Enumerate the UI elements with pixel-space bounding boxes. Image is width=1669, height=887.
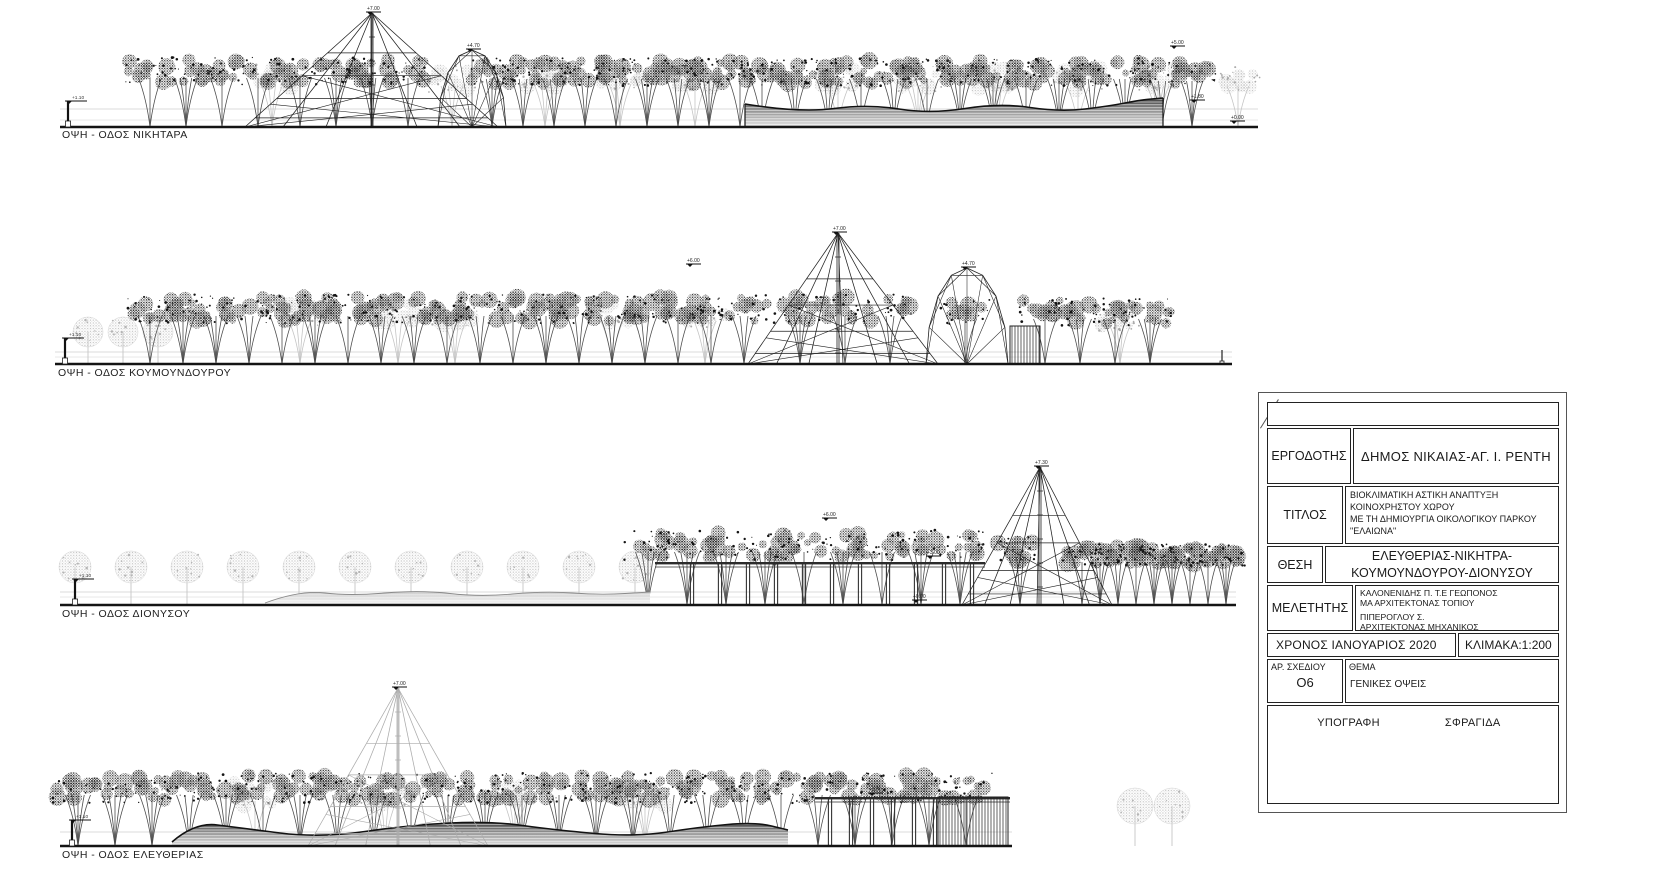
location-row: ΘΕΣΗ ΕΛΕΥΘΕΡΙΑΣ-ΝΙΚΗΤΡΑ- ΚΟΥΜΟΥΝΔΟΥΡΟΥ-Δ… — [1267, 546, 1559, 583]
designer-line: ΠΙΠΕΡΟΓΛΟΥ Σ. — [1360, 612, 1554, 622]
dome-structure: +4.70 — [926, 261, 1008, 364]
pyramid-structure: +7.30 — [962, 460, 1112, 605]
location-line: ΚΟΥΜΟΥΝΔΟΥΡΟΥ-ΔΙΟΝΥΣΟΥ — [1351, 565, 1533, 581]
drawing-number-cell: ΑΡ. ΣΧΕΔΙΟΥ Ο6 — [1267, 659, 1343, 703]
svg-text:+1.80: +1.80 — [1191, 94, 1204, 100]
pyramid-structure: +7.00 — [308, 681, 488, 846]
svg-text:+7.00: +7.00 — [833, 226, 846, 232]
stamp-label: ΣΦΡΑΓΙΔΑ — [1445, 717, 1501, 729]
svg-text:+1.10: +1.10 — [69, 332, 81, 338]
designer-line: ΑΡΧΙΤΕΚΤΟΝΑΣ ΜΗΧΑΝΙΚΟΣ — [1360, 622, 1554, 632]
designer-line: ΚΑΛΟΝΕΝΙΔΗΣ Π. Τ.Ε ΓΕΩΠΟΝΟΣ — [1360, 588, 1554, 598]
project-title-line: "ΕΛΑΙΩΝΑ" — [1350, 526, 1554, 538]
drawing-sheet: { "sheet": { "background": "#ffffff", "l… — [0, 0, 1669, 887]
svg-text:+4.70: +4.70 — [467, 43, 480, 49]
designer-line: ΜΑ ΑΡΧΙΤΕΚΤΟΝΑΣ ΤΟΠΙΟΥ — [1360, 598, 1554, 608]
project-title-line: ΚΟΙΝΟΧΡΗΣΤΟΥ ΧΩΡΟΥ — [1350, 502, 1554, 514]
date-scale-row: ΧΡΟΝΟΣ ΙΑΝΟΥΑΡΙΟΣ 2020 ΚΛΙΜΑΚΑ:1:200 — [1267, 633, 1559, 657]
svg-text:+3.00: +3.00 — [869, 787, 882, 793]
slats-structure — [1010, 326, 1040, 364]
tree-row — [59, 526, 1246, 605]
svg-text:+6.00: +6.00 — [687, 258, 700, 264]
date-value: ΧΡΟΝΟΣ ΙΑΝΟΥΑΡΙΟΣ 2020 — [1267, 633, 1456, 657]
client-label: ΕΡΓΟΔΟΤΗΣ — [1267, 428, 1351, 484]
subject-cell: ΘΕΜΑ ΓΕΝΙΚΕΣ ΟΨΕΙΣ — [1345, 659, 1559, 703]
drawing-number-label: ΑΡ. ΣΧΕΔΙΟΥ — [1268, 660, 1342, 672]
client-row: ΕΡΓΟΔΟΤΗΣ ΔΗΜΟΣ ΝΙΚΑΙΑΣ-ΑΓ. Ι. ΡΕΝΤΗ — [1267, 428, 1559, 484]
designer-value: ΚΑΛΟΝΕΝΙΔΗΣ Π. Τ.Ε ΓΕΩΠΟΝΟΣ ΜΑ ΑΡΧΙΤΕΚΤΟ… — [1355, 585, 1559, 631]
svg-text:+1.10: +1.10 — [72, 95, 84, 101]
scale-value: ΚΛΙΜΑΚΑ:1:200 — [1458, 633, 1559, 657]
svg-text:+0.00: +0.00 — [1231, 115, 1244, 121]
elevation-label-koumoundourou: ΟΨΗ - ΟΔΟΣ ΚΟΥΜΟΥΝΔΟΥΡΟΥ — [58, 367, 231, 379]
svg-text:+5.00: +5.00 — [1171, 40, 1184, 46]
svg-text:+7.30: +7.30 — [1035, 460, 1048, 466]
svg-text:+1.10: +1.10 — [79, 573, 91, 579]
title-block-top-strip — [1267, 402, 1559, 426]
signature-stamp-cell: ΥΠΟΓΡΑΦΗ ΣΦΡΑΓΙΔΑ — [1267, 705, 1559, 804]
elevation-eleftherias: +7.00+1.10+3.00 — [49, 681, 1190, 846]
svg-text:+3.00: +3.00 — [927, 550, 940, 556]
elevation-koumoundourou: +7.00+4.70+1.10+6.00 — [55, 226, 1232, 364]
title-block: ΕΡΓΟΔΟΤΗΣ ΔΗΜΟΣ ΝΙΚΑΙΑΣ-ΑΓ. Ι. ΡΕΝΤΗ ΤΙΤ… — [1258, 392, 1567, 813]
location-label: ΘΕΣΗ — [1267, 546, 1323, 583]
signature-label: ΥΠΟΓΡΑΦΗ — [1317, 717, 1380, 729]
designer-row: ΜΕΛΕΤΗΤΗΣ ΚΑΛΟΝΕΝΙΔΗΣ Π. Τ.Ε ΓΕΩΠΟΝΟΣ ΜΑ… — [1267, 585, 1559, 631]
svg-text:+7.00: +7.00 — [393, 681, 406, 687]
project-title-line: ΒΙΟΚΛΙΜΑΤΙΚΗ ΑΣΤΙΚΗ ΑΝΑΠΤΥΞΗ — [1350, 490, 1554, 502]
mound-structure — [745, 98, 1163, 127]
subject-label: ΘΕΜΑ — [1346, 660, 1558, 672]
elevation-label-eleftherias: ΟΨΗ - ΟΔΟΣ ΕΛΕΥΘΕΡΙΑΣ — [62, 849, 204, 861]
designer-label: ΜΕΛΕΤΗΤΗΣ — [1267, 585, 1353, 631]
project-title-row: ΤΙΤΛΟΣ ΒΙΟΚΛΙΜΑΤΙΚΗ ΑΣΤΙΚΗ ΑΝΑΠΤΥΞΗ ΚΟΙΝ… — [1267, 486, 1559, 544]
project-title-value: ΒΙΟΚΛΙΜΑΤΙΚΗ ΑΣΤΙΚΗ ΑΝΑΠΤΥΞΗ ΚΟΙΝΟΧΡΗΣΤΟ… — [1345, 486, 1559, 544]
location-line: ΕΛΕΥΘΕΡΙΑΣ-ΝΙΚΗΤΡΑ- — [1372, 548, 1512, 564]
elevation-dionysou: +7.30+1.10+6.00+3.00+0.00 — [59, 460, 1246, 605]
elevation-label-dionysou: ΟΨΗ - ΟΔΟΣ ΔΙΟΝΥΣΟΥ — [62, 608, 190, 620]
pergola-structure — [815, 797, 1010, 846]
pergola-structure — [655, 562, 985, 605]
mound-structure — [265, 592, 650, 605]
svg-text:+7.00: +7.00 — [367, 6, 380, 12]
svg-text:+1.10: +1.10 — [76, 814, 88, 820]
location-value: ΕΛΕΥΘΕΡΙΑΣ-ΝΙΚΗΤΡΑ- ΚΟΥΜΟΥΝΔΟΥΡΟΥ-ΔΙΟΝΥΣ… — [1325, 546, 1559, 583]
elevation-nikitara: +7.00+4.70+1.10+5.00+1.80+0.00 — [60, 6, 1260, 127]
project-title-label: ΤΙΤΛΟΣ — [1267, 486, 1343, 544]
number-subject-row: ΑΡ. ΣΧΕΔΙΟΥ Ο6 ΘΕΜΑ ΓΕΝΙΚΕΣ ΟΨΕΙΣ — [1267, 659, 1559, 703]
drawing-number-value: Ο6 — [1268, 675, 1342, 690]
svg-text:+4.70: +4.70 — [962, 261, 975, 267]
project-title-line: ΜΕ ΤΗ ΔΗΜΙΟΥΡΓΙΑ ΟΙΚΟΛΟΓΙΚΟΥ ΠΑΡΚΟΥ — [1350, 514, 1554, 526]
structures: +7.00+4.70 — [748, 226, 1224, 364]
client-value: ΔΗΜΟΣ ΝΙΚΑΙΑΣ-ΑΓ. Ι. ΡΕΝΤΗ — [1353, 428, 1559, 484]
svg-text:+6.00: +6.00 — [823, 512, 836, 518]
subject-value: ΓΕΝΙΚΕΣ ΟΨΕΙΣ — [1346, 679, 1558, 690]
svg-text:+0.00: +0.00 — [913, 594, 926, 600]
mound-structure — [172, 822, 788, 846]
elevation-label-nikitara: ΟΨΗ - ΟΔΟΣ ΝΙΚΗΤΑΡΑ — [62, 129, 188, 141]
